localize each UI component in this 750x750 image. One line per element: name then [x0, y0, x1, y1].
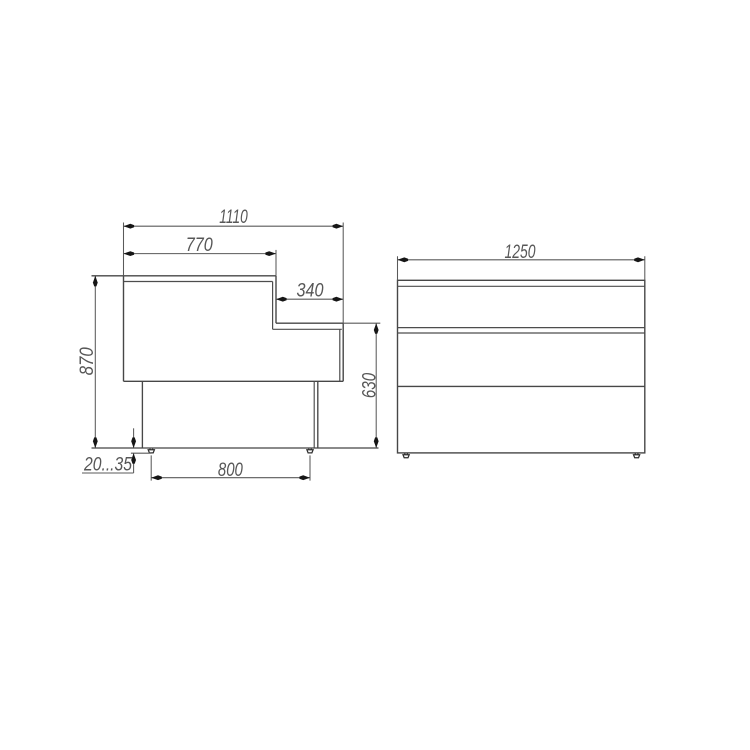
svg-text:340: 340 [297, 280, 324, 302]
svg-text:20...35: 20...35 [83, 454, 132, 476]
svg-text:870: 870 [76, 347, 98, 375]
svg-text:770: 770 [186, 234, 213, 256]
svg-text:800: 800 [218, 459, 243, 481]
svg-text:1250: 1250 [505, 241, 536, 263]
svg-text:630: 630 [358, 373, 380, 398]
svg-text:1110: 1110 [219, 206, 248, 228]
